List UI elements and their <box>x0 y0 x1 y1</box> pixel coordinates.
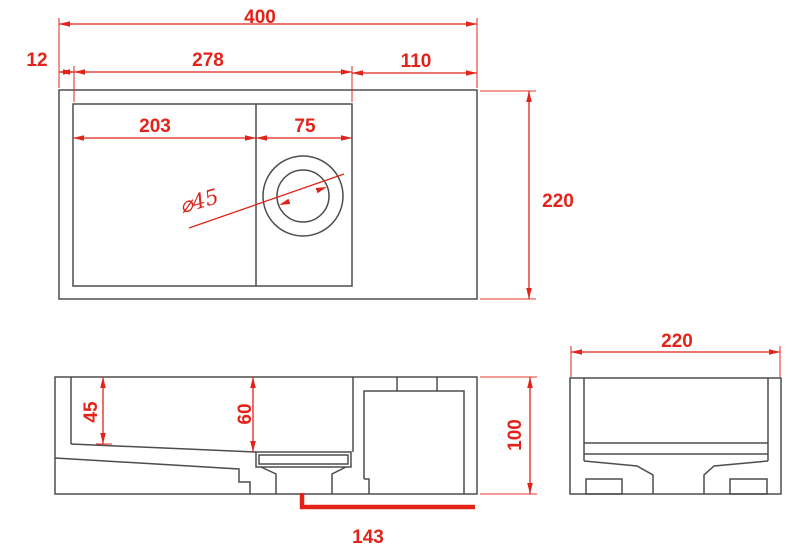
front-shell-underside <box>55 458 250 494</box>
dim-left-wall: 12 <box>26 50 74 102</box>
top-view-outer-outline <box>59 90 477 299</box>
side-view-outline <box>570 378 781 494</box>
dim-label-100: 100 <box>505 419 526 451</box>
technical-drawing-canvas: 400 12 278 110 203 75 <box>0 0 800 554</box>
dim-label-45: 45 <box>81 401 102 423</box>
front-rear-cavity <box>364 391 464 494</box>
dim-label-diameter-45: ⌀45 <box>177 184 221 218</box>
dim-label-220-top: 220 <box>542 191 574 212</box>
top-view: 400 12 278 110 203 75 <box>26 7 573 299</box>
front-drain-plate-inner <box>259 455 348 464</box>
dim-label-143: 143 <box>352 527 384 548</box>
dim-bowl-depth-left: 45 <box>81 377 112 444</box>
front-view: 45 60 100 143 <box>55 377 537 548</box>
dim-label-203: 203 <box>139 116 171 137</box>
dim-label-220-side: 220 <box>661 331 693 352</box>
dim-label-278: 278 <box>192 50 224 71</box>
dim-deck-width: 110 <box>352 51 477 73</box>
dim-drain-diameter: ⌀45 <box>177 174 344 228</box>
dim-drain-offset: 143 <box>302 493 475 548</box>
dim-overall-height: 100 <box>480 377 537 494</box>
dim-label-75: 75 <box>294 116 316 137</box>
dim-drain-zone-width: 75 <box>256 116 352 138</box>
side-drain-boss <box>584 461 768 494</box>
dim-inner-width: 278 <box>74 50 352 102</box>
side-left-foot <box>586 479 622 494</box>
front-drain-pipe <box>261 467 346 494</box>
front-view-outline <box>55 377 477 494</box>
dim-label-12: 12 <box>26 50 47 71</box>
dim-side-depth: 220 <box>571 331 780 377</box>
dim-label-110: 110 <box>401 51 432 72</box>
drain-outer-circle <box>263 156 343 236</box>
dim-bowl-depth-drain: 60 <box>235 377 256 452</box>
drawing-page: 400 12 278 110 203 75 <box>0 0 800 554</box>
side-view: 220 <box>570 331 781 494</box>
front-bowl-floor <box>71 444 256 452</box>
dim-top-depth: 220 <box>480 91 574 299</box>
side-right-foot <box>730 479 767 494</box>
drain-inner-circle <box>277 170 329 222</box>
dim-overall-width: 400 <box>59 7 477 88</box>
dim-label-60: 60 <box>235 403 256 424</box>
dim-label-400: 400 <box>244 7 276 28</box>
dim-bowl-width: 203 <box>73 116 256 138</box>
